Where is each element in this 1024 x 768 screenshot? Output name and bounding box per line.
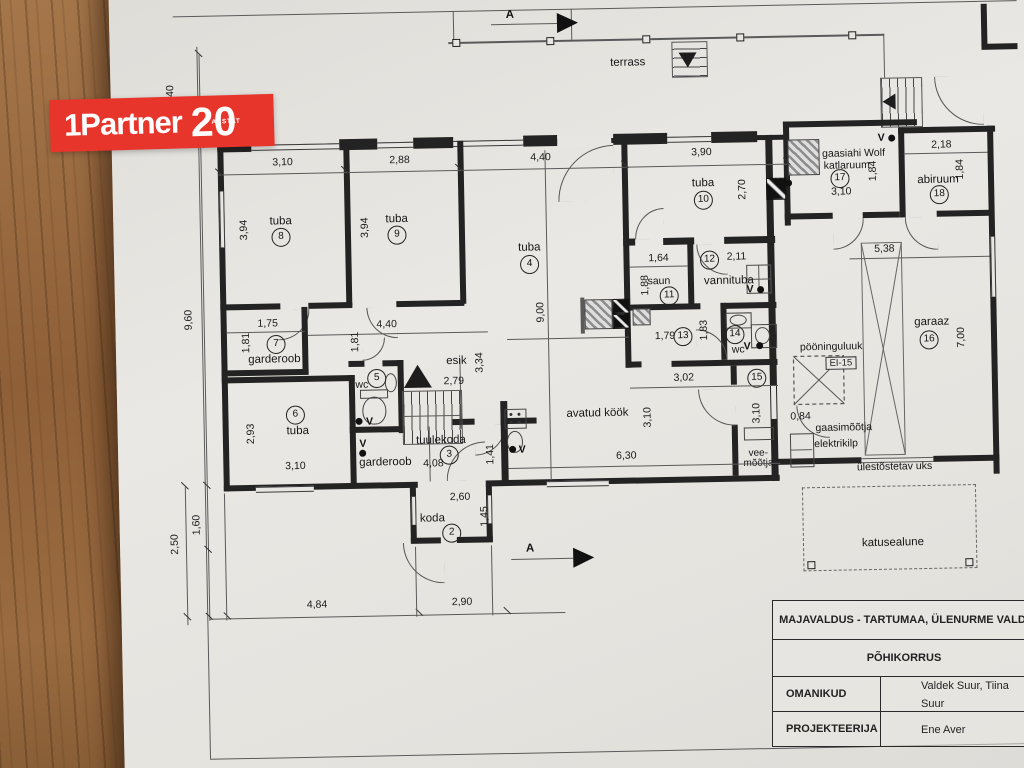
- dimension: 1,81: [240, 333, 252, 354]
- room-label: wc: [732, 343, 745, 355]
- room-label: avatud köök: [566, 407, 628, 420]
- counter-line: [507, 337, 629, 340]
- room-number: 11: [660, 286, 679, 305]
- extension-line: [491, 545, 493, 615]
- vent-shaft-icon: [613, 314, 630, 329]
- owners-value: Valdek Suur, Tiina Suur: [921, 680, 1009, 710]
- terrace-tick: [453, 11, 455, 42]
- dimension: 2,93: [245, 424, 257, 445]
- wall-pier: [413, 137, 453, 149]
- dimension: 4,40: [376, 318, 397, 330]
- wall: [687, 243, 694, 307]
- vent-dot-icon: [756, 342, 763, 349]
- window: [219, 191, 225, 247]
- window: [990, 237, 996, 297]
- wall: [981, 43, 1017, 50]
- ventilation-icon: V: [366, 416, 373, 428]
- wall: [724, 302, 776, 309]
- dimension: 1,45: [478, 506, 490, 527]
- overhead-door-label: ülestõstetav uks: [857, 460, 933, 473]
- wall: [731, 366, 737, 385]
- vent-dot-icon: [757, 286, 764, 293]
- owners-value-cell: Valdek Suur, Tiina Suur: [881, 676, 1024, 712]
- window: [667, 136, 711, 143]
- wall: [222, 375, 355, 384]
- title-block-row: MAJAVALDUS - TARTUMAA, ÜLENURME VALD,: [773, 601, 1024, 640]
- wall: [933, 455, 999, 462]
- title-block-row: PÕHIKORRUS: [773, 640, 1024, 677]
- ventilation-icon: V: [519, 444, 526, 456]
- wall: [898, 127, 906, 217]
- terrace-edge-line: [448, 34, 884, 44]
- dimension: 2,90: [452, 596, 473, 608]
- wall: [396, 300, 464, 307]
- vent-dot-icon: [355, 418, 362, 425]
- chimney-shaft-icon: [787, 139, 820, 176]
- room-label: tuba: [518, 241, 541, 253]
- wall: [457, 536, 493, 543]
- wall: [301, 307, 308, 373]
- stove-burners: [509, 413, 512, 416]
- floor-name: PÕHIKORRUS: [867, 652, 942, 664]
- dimension: 1,84: [867, 161, 879, 182]
- dimension: 1,81: [349, 332, 361, 353]
- room-number: 16: [919, 330, 938, 349]
- wall: [776, 457, 861, 465]
- dimension: 0,84: [790, 410, 811, 422]
- owners-label: OMANIKUD: [786, 688, 847, 700]
- room-number: 9: [387, 225, 406, 244]
- wall: [348, 361, 364, 367]
- room-label: gaasiahi Wolf: [822, 147, 885, 160]
- designer-label: PROJEKTEERIJA: [786, 723, 878, 735]
- dimension: 7,00: [955, 327, 967, 348]
- dimension: 3,10: [641, 407, 653, 428]
- room-number: 10: [694, 191, 713, 210]
- terrace-label: terrass: [610, 56, 645, 69]
- post: [965, 558, 973, 566]
- wall: [343, 143, 352, 306]
- section-marker-a-top: A: [506, 9, 515, 21]
- room-label: esik: [446, 355, 467, 367]
- title-block: MAJAVALDUS - TARTUMAA, ÜLENURME VALD, PÕ…: [772, 600, 1024, 747]
- stairs-direction-arrow-icon: [403, 364, 431, 388]
- designer-value: Ene Aver: [921, 724, 965, 736]
- dimension: 3,10: [831, 185, 852, 197]
- room-number: 7: [266, 335, 285, 354]
- room-label: koda: [420, 512, 445, 524]
- wall: [623, 239, 635, 246]
- wall-bottom: [486, 475, 780, 487]
- dimension: 9,60: [182, 310, 194, 331]
- dimension: 2,70: [736, 179, 748, 200]
- window: [453, 140, 523, 147]
- door-opening: [557, 135, 611, 146]
- dim-line: [185, 487, 189, 625]
- door-arc: [698, 389, 736, 427]
- partner-logo-20-years: 20 AASTAT: [190, 101, 237, 142]
- vent-dot-icon: [785, 180, 792, 187]
- door-arc: [362, 337, 385, 360]
- wall: [625, 361, 641, 367]
- ventilation-icon: V: [359, 438, 366, 450]
- dim-line: [630, 266, 688, 268]
- door-opening: [771, 386, 777, 419]
- dimension: 1,64: [648, 252, 669, 264]
- wall-pier: [523, 135, 557, 147]
- dimension: 1,60: [190, 515, 202, 536]
- terrace-post: [736, 33, 744, 41]
- roofed-area-outline: [802, 484, 978, 571]
- window: [256, 486, 314, 493]
- room-label: abiruum: [917, 173, 959, 186]
- fire-rating-label: EI-15: [825, 356, 856, 370]
- dimension: 1,84: [954, 159, 966, 180]
- room-label: garderoob: [248, 353, 301, 366]
- wall-pier: [711, 131, 757, 143]
- title-block-row: PROJEKTEERIJA Ene Aver: [773, 712, 1024, 746]
- room-label: garaaz: [914, 316, 949, 329]
- dimension: 3,10: [285, 460, 306, 472]
- photo-of-floorplan: terrass A: [0, 0, 1024, 768]
- room-label: tuba: [286, 425, 309, 437]
- wall: [863, 211, 900, 218]
- dimension: 1,88: [639, 275, 651, 296]
- section-line: [511, 558, 573, 561]
- room-number: 4: [520, 255, 539, 274]
- room-label: tuulekoda: [416, 434, 466, 447]
- dimension: 2,18: [931, 138, 952, 150]
- wall: [724, 236, 775, 244]
- window: [547, 480, 609, 487]
- designer-value-cell: Ene Aver: [881, 720, 1024, 738]
- wall: [308, 302, 352, 309]
- sheet-frame-line: [196, 47, 211, 759]
- section-marker-a-bottom: A: [526, 543, 535, 555]
- room-label: tuba: [692, 177, 715, 189]
- section-arrow-icon: [573, 547, 594, 567]
- wall: [987, 126, 1000, 474]
- gas-meter-label: gaasimõõtja: [815, 421, 872, 434]
- section-line: [491, 23, 557, 26]
- dimension: 4,84: [307, 599, 328, 611]
- dimension: 5,38: [874, 243, 895, 255]
- designer-label-cell: PROJEKTEERIJA: [773, 712, 881, 746]
- stairs-direction-arrow-icon: [679, 52, 697, 67]
- terrace-post: [546, 37, 554, 45]
- dimension: 2,50: [169, 534, 181, 555]
- room-number: 6: [286, 405, 305, 424]
- dimension: 2,88: [389, 154, 410, 166]
- section-arrow-icon: [557, 13, 578, 33]
- dimension: 4,08: [423, 457, 444, 469]
- stove-icon: [504, 409, 526, 429]
- wall: [350, 426, 405, 433]
- wall: [621, 138, 631, 368]
- wall: [898, 126, 995, 134]
- dimension: 3,94: [238, 220, 250, 241]
- dimension: 1,79: [655, 330, 676, 342]
- wall: [981, 4, 988, 48]
- dimension: 1,41: [484, 444, 496, 465]
- extension-line: [224, 493, 227, 620]
- dimension: 1,83: [698, 320, 710, 341]
- room-label: vannituba: [704, 274, 754, 287]
- garage-door-line: [861, 457, 933, 459]
- water-meter-fixture: [744, 427, 774, 441]
- room-number: 5: [367, 369, 386, 388]
- wall: [937, 210, 991, 217]
- dimension: 2,11: [727, 250, 747, 262]
- owners-label-cell: OMANIKUD: [773, 677, 881, 711]
- partner-logo: 1Partner 20 AASTAT: [49, 94, 274, 152]
- wall: [220, 303, 280, 310]
- dimension: 9,00: [534, 302, 546, 323]
- ventilation-icon: V: [878, 132, 885, 144]
- terrace-post: [642, 35, 650, 43]
- room-label: tuba: [269, 215, 292, 227]
- post: [807, 561, 815, 569]
- vent-dot-icon: [888, 135, 895, 142]
- door-arc: [905, 217, 939, 251]
- dim-line: [218, 164, 788, 176]
- dim-line: [209, 612, 565, 620]
- dimension: 3,34: [473, 352, 485, 373]
- dimension: 1,75: [257, 317, 278, 329]
- room-number: 8: [271, 228, 290, 247]
- chimney-shaft-icon: [584, 299, 613, 330]
- vent-shaft-icon: [612, 299, 629, 314]
- wall: [785, 213, 833, 220]
- dimension: 2,79: [443, 375, 464, 387]
- window: [411, 497, 417, 525]
- attic-hatch-label: pööninguluuk: [800, 340, 863, 353]
- stairs-direction-arrow-icon: [882, 94, 895, 110]
- chimney-shaft-icon: [632, 308, 650, 325]
- door-arc: [403, 542, 445, 584]
- room-label: wc: [355, 379, 368, 391]
- terrace-side-line: [883, 34, 885, 78]
- dimension: 2,60: [450, 491, 471, 503]
- room-number: 18: [930, 185, 949, 204]
- title-block-row: OMANIKUD Valdek Suur, Tiina Suur: [773, 677, 1024, 712]
- roofed-area-label: katusealune: [862, 536, 924, 549]
- dimension: 3,94: [359, 217, 371, 238]
- dim-line: [904, 152, 988, 155]
- dimension: 3,90: [691, 146, 712, 158]
- room-number: 14: [725, 325, 744, 344]
- project-title: MAJAVALDUS - TARTUMAA, ÜLENURME VALD,: [779, 614, 1024, 626]
- sink-icon: [385, 373, 397, 392]
- ventilation-icon: V: [774, 177, 781, 189]
- terrace-post: [848, 31, 856, 39]
- door-arc: [635, 208, 665, 240]
- dim-line: [508, 463, 780, 469]
- partner-logo-aastat: AASTAT: [211, 102, 241, 143]
- wall: [671, 359, 777, 367]
- window: [377, 142, 413, 149]
- room-label: tuba: [385, 213, 408, 225]
- dimension: 3,02: [673, 371, 694, 383]
- dimension: 3,10: [272, 156, 293, 168]
- room-number: 13: [673, 327, 692, 346]
- terrace-post: [452, 39, 460, 47]
- dimension: 3,10: [750, 403, 762, 424]
- wall: [580, 298, 585, 334]
- room-label: katlaruum: [824, 159, 870, 172]
- electric-panel-label: elektrikilp: [814, 437, 858, 450]
- partner-logo-brand: 1Partner: [64, 104, 183, 143]
- dimension: 6,30: [616, 450, 637, 462]
- wall: [732, 425, 739, 476]
- room-label: garderoob: [359, 456, 412, 469]
- dimension: 4,40: [530, 151, 551, 163]
- wall: [457, 141, 466, 304]
- door-arc: [557, 145, 614, 202]
- wall-bottom: [224, 482, 418, 492]
- door-arc: [934, 76, 984, 126]
